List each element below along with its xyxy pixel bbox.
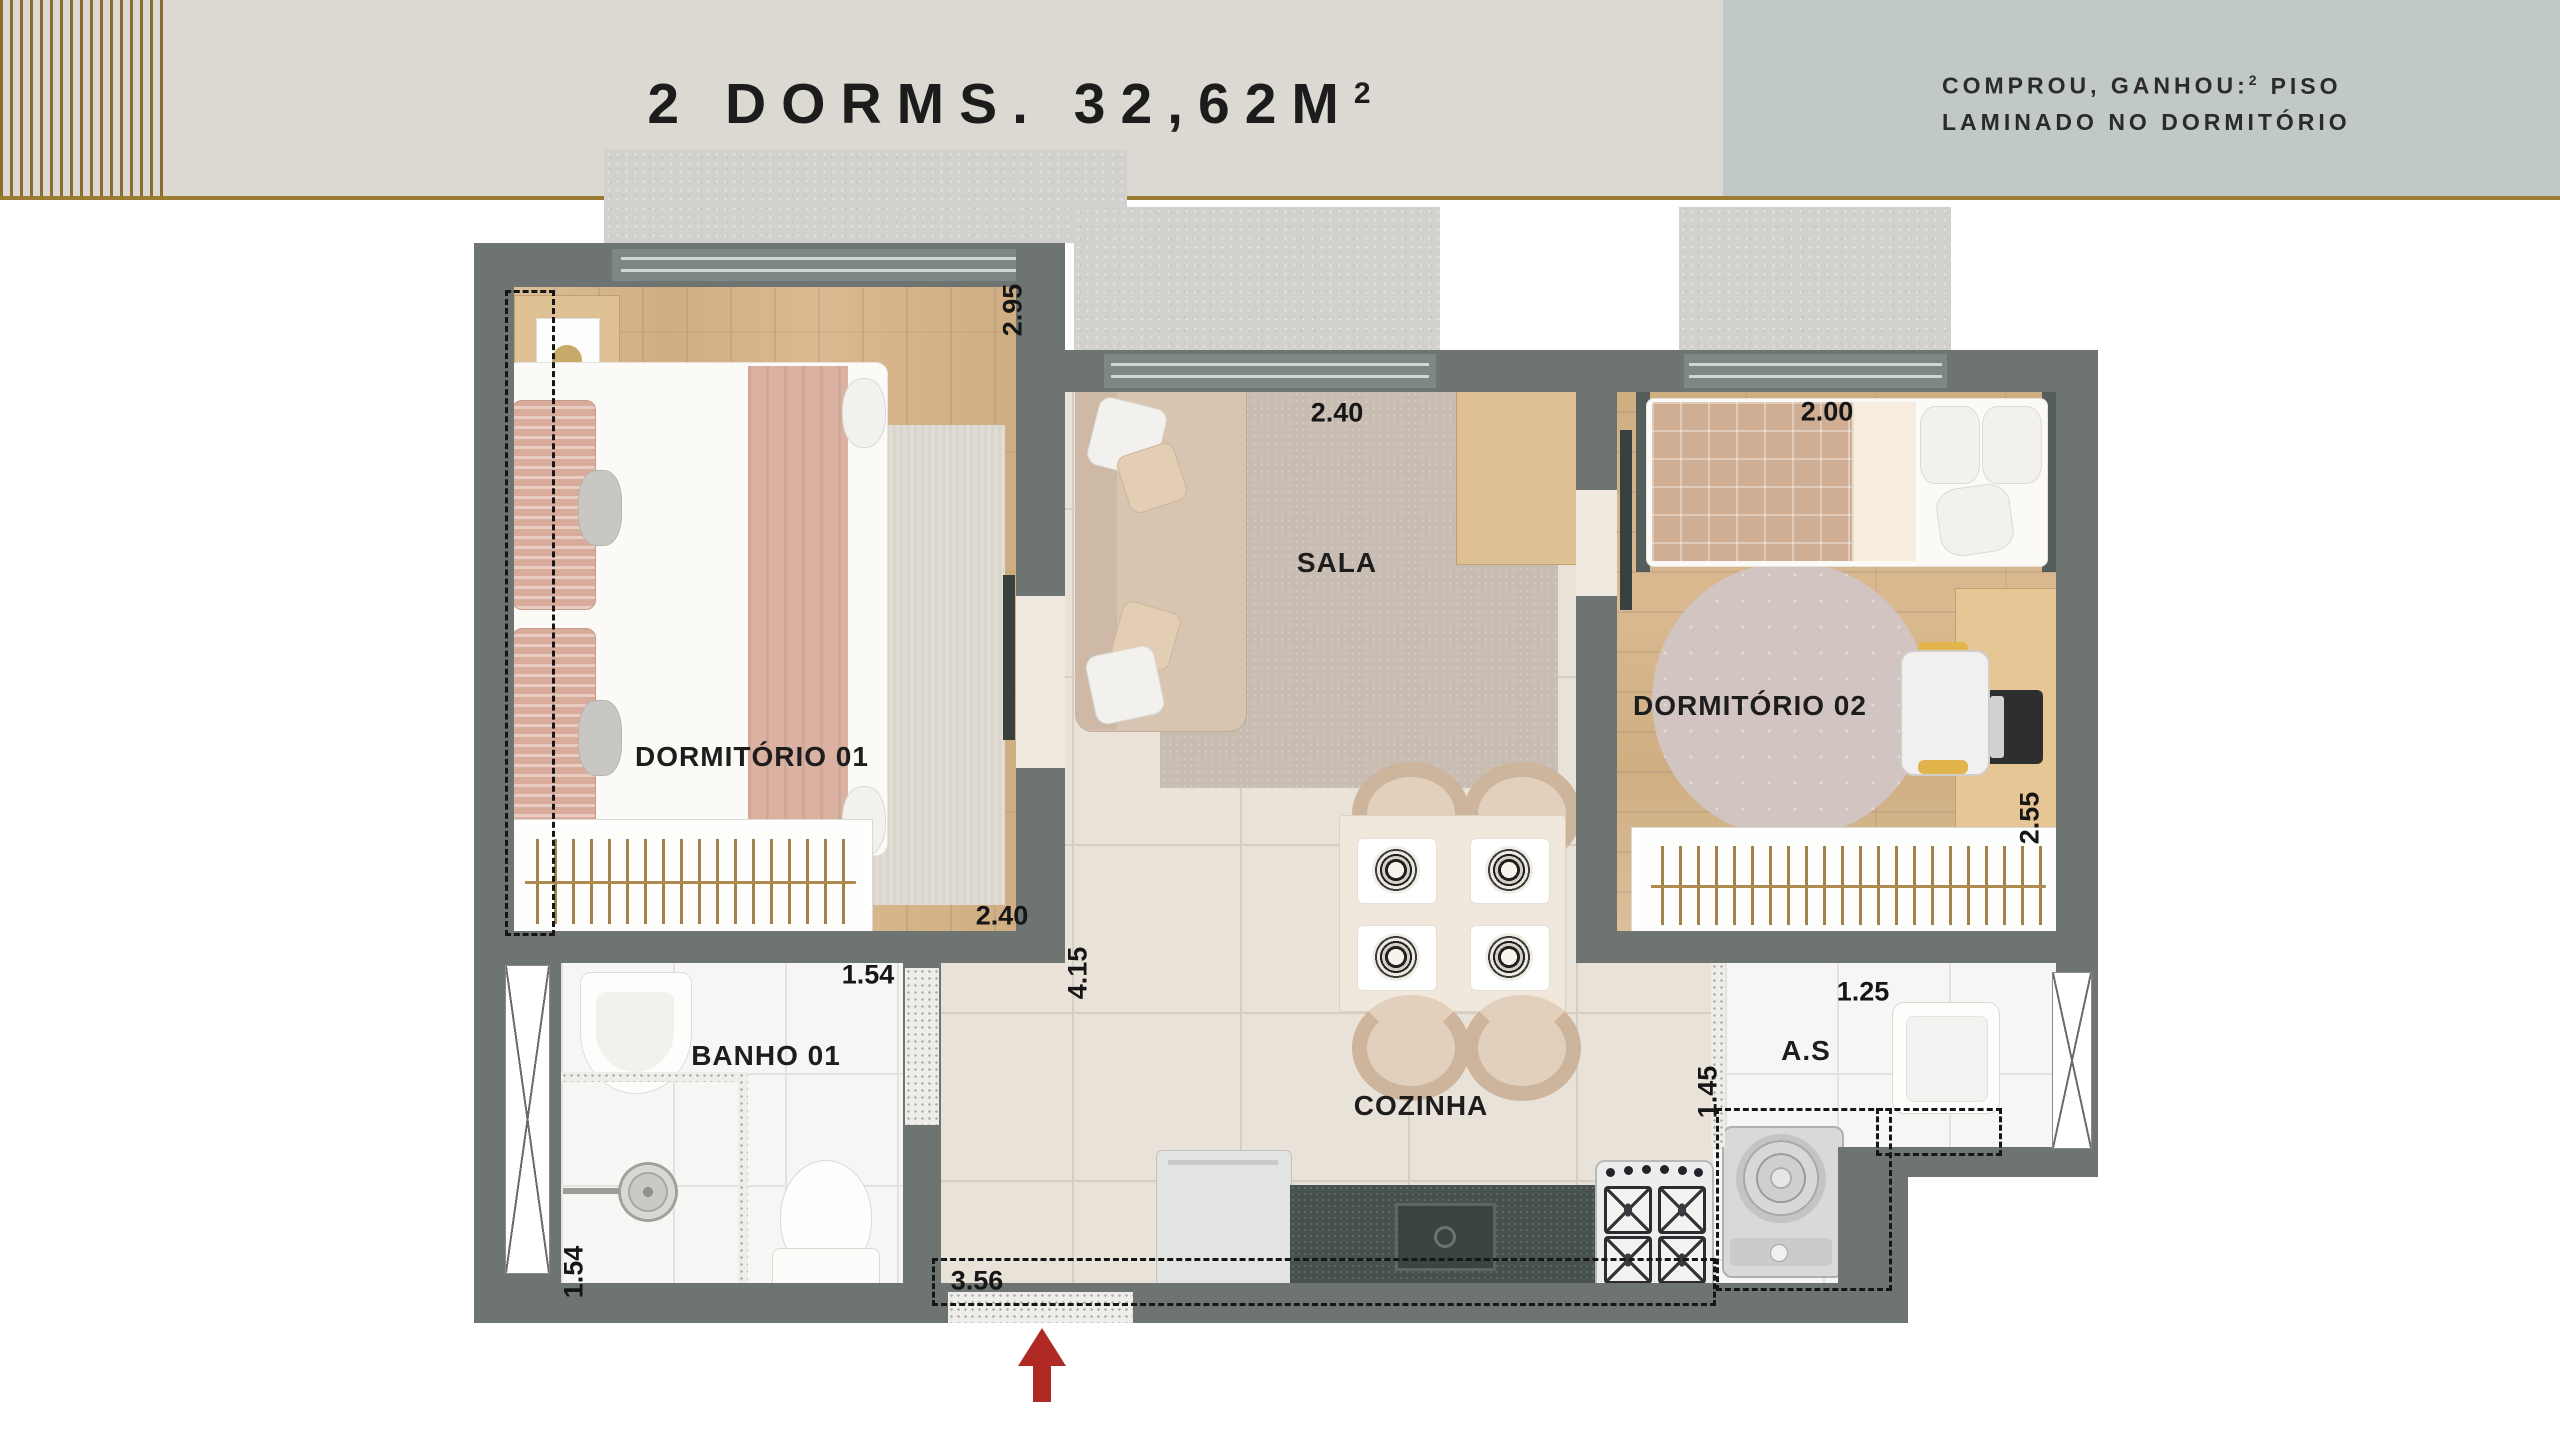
pillow bbox=[1982, 406, 2042, 484]
dorm2-door-opening bbox=[1576, 490, 1617, 596]
stove-knob bbox=[1624, 1166, 1633, 1175]
dorm1-window bbox=[612, 249, 1048, 281]
stove-knob bbox=[1642, 1165, 1651, 1174]
dining-chair bbox=[1463, 995, 1581, 1101]
balcony-ledge bbox=[604, 150, 1127, 243]
pillow-small bbox=[578, 470, 622, 546]
entrance-arrow bbox=[1018, 1328, 1066, 1366]
sala-window bbox=[1104, 354, 1436, 388]
bolster-pillow bbox=[842, 378, 886, 448]
entry-dashed-measure bbox=[932, 1258, 1716, 1306]
dorm1-closet-dashed bbox=[505, 290, 555, 936]
plate bbox=[1368, 929, 1424, 985]
sofa-pillow bbox=[1083, 643, 1166, 726]
dorm2-window bbox=[1684, 354, 1947, 388]
page-title-sup: 2 bbox=[1354, 77, 1373, 110]
dim-hall-depth: 4.15 bbox=[1063, 947, 1094, 1000]
stove-knob bbox=[1694, 1168, 1703, 1177]
dorm2-sheet bbox=[1852, 402, 1916, 561]
label-as: A.S bbox=[1781, 1035, 1831, 1067]
dim-sala-width: 2.40 bbox=[1311, 398, 1364, 429]
entrance-arrow-shaft bbox=[1033, 1364, 1051, 1402]
stove-knob bbox=[1678, 1166, 1687, 1175]
dorm1-tv bbox=[1003, 575, 1015, 740]
page-title: 2 DORMS. 32,62M2 bbox=[647, 71, 1372, 137]
dim-as-depth: 1.45 bbox=[1693, 1066, 1724, 1119]
as-shaft-window bbox=[2052, 972, 2092, 1149]
fridge-handle bbox=[1168, 1160, 1278, 1165]
shower-head bbox=[618, 1162, 678, 1222]
wall-mid-right bbox=[1576, 931, 2098, 963]
wall-dorm2-left bbox=[1576, 596, 1617, 931]
floor-plan-page: 2 DORMS. 32,62M2 COMPROU, GANHOU:2PISO L… bbox=[0, 0, 2560, 1440]
dim-dorm1-width: 2.40 bbox=[976, 901, 1029, 932]
dim-banho-depth: 1.54 bbox=[559, 1246, 590, 1299]
dim-entry-width: 3.56 bbox=[951, 1266, 1004, 1297]
banho-shaft-window bbox=[505, 965, 550, 1274]
dim-banho-width: 1.54 bbox=[842, 960, 895, 991]
header-divider bbox=[0, 196, 2560, 200]
label-cozinha: COZINHA bbox=[1354, 1090, 1489, 1122]
plate bbox=[1481, 929, 1537, 985]
burner bbox=[1658, 1186, 1706, 1234]
burner bbox=[1604, 1186, 1652, 1234]
pillow bbox=[1920, 406, 1980, 484]
shower-arm bbox=[563, 1188, 625, 1194]
wall-mid-left bbox=[474, 931, 1065, 963]
as-counter-dashed bbox=[1876, 1108, 2002, 1156]
plate bbox=[1481, 842, 1537, 898]
dorm1-wardrobe bbox=[508, 820, 872, 944]
bathroom-sink-bowl bbox=[596, 992, 674, 1072]
banho-door-threshold bbox=[905, 968, 939, 1125]
as-dashed-measure bbox=[1716, 1108, 1892, 1291]
dorm1-door-opening bbox=[1016, 596, 1065, 768]
label-sala: SALA bbox=[1297, 547, 1377, 579]
promo-line1: COMPROU, GANHOU:2PISO bbox=[1942, 62, 2502, 104]
dorm1-blanket bbox=[748, 366, 848, 850]
plate bbox=[1368, 842, 1424, 898]
wall-dorm2-left bbox=[1576, 350, 1617, 490]
shower-curb bbox=[561, 1072, 748, 1082]
label-dorm2: DORMITÓRIO 02 bbox=[1633, 690, 1867, 722]
stove-knob bbox=[1660, 1165, 1669, 1174]
label-banho: BANHO 01 bbox=[691, 1040, 841, 1072]
shower-curb bbox=[738, 1072, 748, 1285]
laundry-tub-basin bbox=[1906, 1016, 1988, 1102]
balcony-ledge bbox=[1074, 207, 1440, 350]
laptop-screen bbox=[1990, 696, 2004, 758]
label-dorm1: DORMITÓRIO 01 bbox=[635, 741, 869, 773]
dim-dorm1-depth: 2.95 bbox=[998, 284, 1029, 337]
page-title-text: 2 DORMS. 32,62M bbox=[647, 72, 1354, 136]
chair-accent bbox=[1918, 760, 1968, 774]
stove-knob bbox=[1606, 1168, 1615, 1177]
promo-line2: LAMINADO NO DORMITÓRIO bbox=[1942, 104, 2502, 140]
decor-stripes bbox=[0, 0, 170, 196]
desk-chair bbox=[1900, 650, 1990, 776]
pillow bbox=[1934, 481, 2017, 559]
dim-dorm2-width: 2.00 bbox=[1801, 397, 1854, 428]
balcony-ledge bbox=[1679, 207, 1951, 350]
dorm2-wardrobe bbox=[1632, 828, 2064, 944]
pillow-small bbox=[578, 700, 622, 776]
dim-as-width: 1.25 bbox=[1837, 977, 1890, 1008]
dorm2-tv bbox=[1620, 430, 1632, 610]
dining-chair bbox=[1352, 995, 1470, 1101]
dim-dorm2-depth: 2.55 bbox=[2015, 792, 2046, 845]
promo-text: COMPROU, GANHOU:2PISO LAMINADO NO DORMIT… bbox=[1942, 62, 2502, 140]
sideboard bbox=[1456, 379, 1583, 565]
sink-drain bbox=[1434, 1226, 1456, 1248]
